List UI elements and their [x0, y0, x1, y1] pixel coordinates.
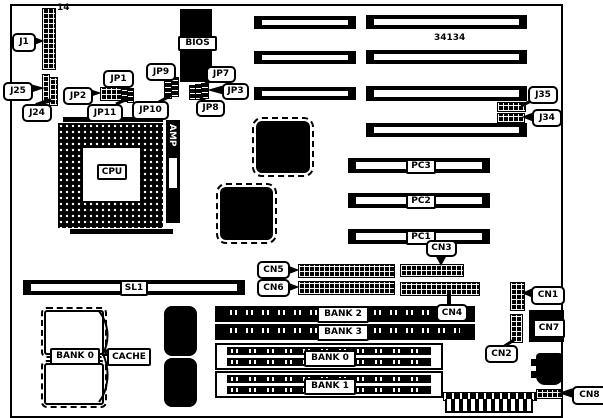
motherboard-diagram: 14 BIOS 34134 CPU AMP PC3 PC2 [0, 0, 603, 418]
sl1-label: SL1 [120, 280, 148, 296]
amp-notch [169, 158, 177, 188]
cache-label: CACHE [107, 348, 151, 366]
cn5-header [298, 264, 395, 278]
jp11-jumper [127, 88, 134, 103]
din-notch-1 [531, 359, 536, 366]
keyboard-din-connector [536, 353, 563, 385]
bank3-label: BANK 3 [317, 324, 369, 341]
isa-slot-short-3 [254, 87, 356, 100]
callout-jp10: JP10 [132, 101, 169, 120]
isa-slot-long-1 [366, 15, 527, 29]
isa-slot-long-3 [366, 86, 527, 101]
callout-j34: J34 [532, 109, 562, 127]
bank0-label: BANK 0 [304, 350, 356, 367]
cn3-header [400, 264, 464, 277]
power-connector-teeth [445, 399, 533, 413]
pc3-label: PC3 [406, 159, 436, 174]
j24-header [49, 77, 58, 106]
smd-chip-1 [164, 306, 197, 356]
callout-jp7: JP7 [206, 66, 236, 83]
din-notch-2 [531, 371, 536, 378]
qfp-chip-1 [256, 121, 310, 173]
callout-j1: J1 [12, 33, 36, 52]
callout-jp9: JP9 [146, 63, 176, 81]
cn1-header [510, 282, 525, 311]
cache-bank0-label: BANK 0 [50, 348, 100, 365]
cn8-header [536, 389, 563, 399]
isa-slot-long-2 [366, 50, 527, 64]
cpu-socket-bottom-bar [70, 229, 173, 234]
bank2-label: BANK 2 [317, 306, 369, 323]
cn6-header [298, 281, 395, 295]
callout-jp2: JP2 [63, 87, 93, 105]
jp2-jumper-block [100, 87, 122, 101]
isa-slot-short-2 [254, 51, 356, 64]
board-part-number: 34134 [434, 34, 465, 43]
callout-j25: J25 [3, 82, 33, 101]
smd-chip-2 [164, 358, 197, 407]
callout-jp11: JP11 [87, 104, 123, 122]
isa-slot-short-1 [254, 16, 356, 29]
callout-cn4: CN4 [436, 304, 468, 322]
cn7-label: CN7 [533, 319, 565, 338]
cache-chip-2 [44, 363, 104, 405]
callout-cn5: CN5 [257, 261, 290, 279]
callout-jp8: JP8 [196, 100, 225, 117]
callout-cn3: CN3 [426, 240, 457, 257]
j35-header [497, 102, 526, 112]
callout-jp1: JP1 [103, 70, 134, 88]
j1-header [42, 8, 56, 70]
j1-pin14-label: 14 [57, 4, 70, 13]
callout-cn2: CN2 [485, 345, 518, 363]
pc2-label: PC2 [406, 194, 436, 209]
amp-label: AMP [167, 124, 176, 147]
callout-cn8: CN8 [572, 386, 603, 405]
cn2-header [510, 314, 523, 343]
callout-j24: J24 [22, 104, 52, 122]
callout-cn1: CN1 [531, 286, 565, 305]
amp-module: AMP [166, 120, 180, 223]
callout-jp3: JP3 [222, 83, 249, 100]
isa-slot-long-4 [366, 123, 527, 137]
cpu-label: CPU [97, 164, 127, 180]
callout-cn6: CN6 [257, 279, 290, 297]
callout-j35: J35 [528, 86, 558, 104]
jp3-jumper [201, 83, 209, 99]
qfp-chip-2 [220, 187, 273, 240]
bank1-label: BANK 1 [304, 378, 356, 395]
j34-header [497, 113, 525, 123]
bios-label: BIOS [178, 36, 217, 51]
cn4-header [400, 282, 480, 296]
